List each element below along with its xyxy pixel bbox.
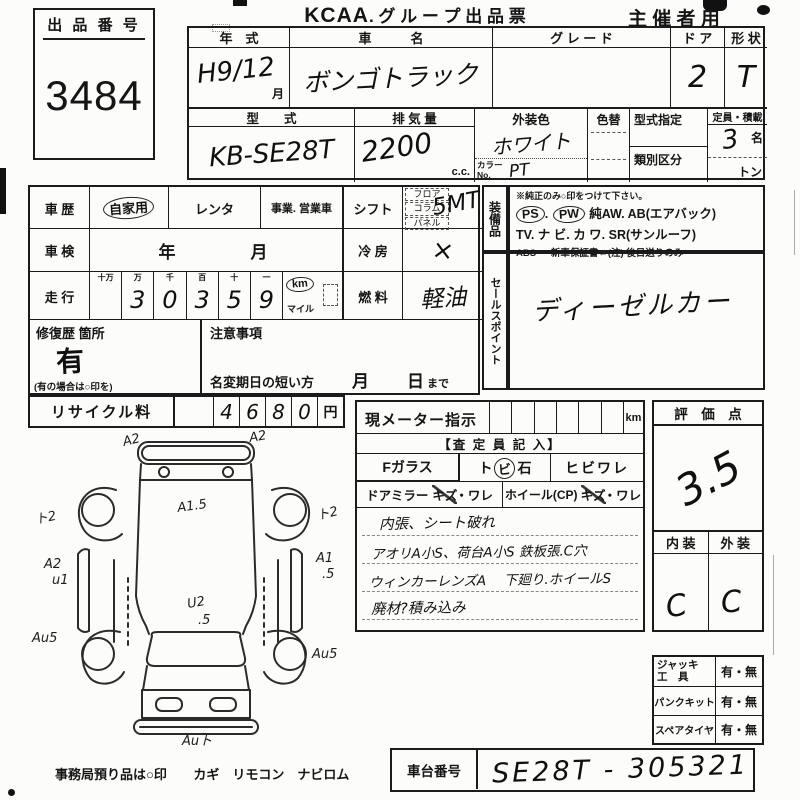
aircon-value: × (430, 234, 456, 267)
rear-fender-right (266, 488, 309, 540)
scan-artifact (757, 5, 770, 15)
jack-tools-label-2: 工 具 (657, 671, 715, 683)
fuel-cell: 軽油 (402, 272, 482, 320)
exterior-label: 外 装 (709, 532, 763, 553)
assessor-note-4: 廃材?積み込み (371, 596, 466, 619)
damage-annotation: A2 (43, 557, 61, 572)
digit-header: 万 (122, 272, 153, 283)
exterior-grade-cell: C (709, 554, 763, 630)
displacement-value: 2200 (359, 126, 434, 169)
lot-number-box: 出 品 番 号 3484 (33, 8, 155, 160)
shaken-label: 車 検 (30, 229, 90, 272)
model-cell: 型 式 KB-SE28T (189, 107, 354, 182)
exterior-color-cell: 外装色 ホワイト カラーNo. PT (474, 107, 587, 182)
ruled-line (362, 535, 638, 536)
assessor-header: 【査 定 員 記 入】 (357, 434, 643, 454)
year-label: 年 式 (189, 28, 289, 48)
shaken-value: 年 月 (90, 229, 342, 272)
spare-tire-label: スペアタイヤ (654, 716, 716, 743)
history-row: 車 歴 自家用 レンタ 事業. 営業車 シフト フロア コラム パネル 5MT (30, 187, 482, 229)
repair-value: 有 (55, 339, 85, 380)
door-value: 2 (688, 60, 707, 95)
scan-artifact (8, 789, 15, 796)
wheel-kizu: キズ (581, 485, 606, 504)
equipment-ps: PS (515, 205, 545, 224)
rear-fender-left (79, 488, 122, 540)
door-mirror-label: ドアミラー (366, 485, 428, 504)
model-designation-cell: 型式指定 類別区分 (629, 107, 707, 182)
side-panel-left (78, 549, 89, 632)
door-label: ド ア (671, 28, 724, 48)
mileage-digits: 十万 万3 千0 百3 十5 一9 (90, 272, 282, 320)
equipment-line1: 純AW. AB(エアバック) (589, 207, 716, 221)
damage-annotation: .5 (198, 613, 210, 628)
shape-cell: 形 状 T (724, 28, 767, 107)
meter-digit-box (556, 402, 578, 433)
crack-label: ヒビワレ (550, 454, 643, 482)
bed-right-edge (252, 480, 256, 596)
recycle-digit: 6 (239, 397, 265, 426)
office-note-items: カギ リモコン ナビロム (193, 767, 349, 782)
history-business: 事業. 営業車 (260, 187, 342, 229)
office-note: 事務局預り品は○印 カギ リモコン ナビロム (55, 764, 349, 784)
sales-point-box: ディーゼルカー (508, 252, 765, 390)
mileage-mile-box (323, 284, 338, 306)
door-mirror-kizu: キズ (432, 485, 457, 504)
history-rental: レンタ (168, 187, 260, 229)
jack-tools-value: 有・無 (716, 657, 762, 686)
meter-row: 現メーター指示 km (357, 402, 643, 434)
history-label: 車 歴 (30, 187, 90, 229)
displacement-unit: c.c. (452, 166, 470, 178)
exterior-grade: C (719, 584, 743, 621)
sheet-title-text: . グ ル ー プ 出 品 票 (369, 7, 526, 26)
mileage-unit-cell: km マイル (282, 272, 342, 320)
damage-annotation: ト2 (315, 504, 339, 524)
damage-annotation: A2 (247, 428, 268, 446)
equipment-vlabel: 装備品 (487, 201, 504, 237)
damage-annotation: Au5 (31, 631, 57, 646)
rear-gate-inner (142, 446, 250, 460)
mileage-digit: 3 (122, 283, 153, 317)
vehicle-diagram: A2 A2 A1.5 ト2 ト2 A2 u1 A1 .5 U2 .5 Au5 A… (28, 428, 352, 750)
rating-score: 3.5 (667, 441, 749, 516)
year-cell: 年 式 H9/12 月 (189, 28, 289, 107)
assessor-note-1: 内張、シート破れ (379, 511, 495, 534)
repair-caution-row: 修復歴 箇所 有 (有の場合は○印を) 注意事項 名変期日の短い方 月 日 まで (30, 320, 482, 397)
capacity-unit: 名 (751, 129, 763, 146)
model-label: 型 式 (189, 109, 354, 127)
interior-grade: C (663, 587, 690, 625)
cab-neck-left (136, 596, 149, 634)
cab-neck-right (243, 596, 256, 634)
damage-annotation: A1 (315, 551, 333, 566)
color-change-label: 色替 (588, 109, 629, 128)
digit-header: 一 (251, 272, 282, 283)
vehicle-table: 年 式 H9/12 月 車 名 ボンゴトラック グ レ ー ド ド ア 2 形 … (187, 26, 765, 180)
recycle-digit: 4 (213, 397, 239, 426)
interior-grade-cell: C (654, 554, 709, 630)
caution-label: 注意事項 (210, 323, 262, 342)
grade-cell: グ レ ー ド (492, 28, 670, 107)
side-panel-right (291, 549, 302, 632)
shift-label: シフト (342, 187, 402, 229)
scan-artifact (0, 168, 6, 214)
shape-value: T (737, 60, 755, 95)
ruled-line (362, 619, 638, 620)
recycle-unit: 円 (317, 397, 343, 426)
meter-digit-box (534, 402, 556, 433)
damage-annotation: U2 (186, 594, 206, 612)
puncture-kit-label: パンクキット (654, 687, 716, 715)
sheet-title: KCAA. グ ル ー プ 出 品 票 (250, 2, 580, 28)
meter-digit-box (601, 402, 623, 433)
windshield (147, 632, 245, 666)
fuel-label: 燃 料 (342, 272, 402, 320)
exterior-color-value: ホワイト (490, 125, 572, 161)
meter-digit-box (578, 402, 600, 433)
sales-point-value: ディーゼルカー (531, 281, 733, 328)
kcaa-logo: KCAA (304, 4, 369, 27)
chassis-box: 車台番号 SE28T - 305321 (390, 748, 755, 792)
history-private: 自家用 (90, 187, 168, 229)
bed-hook-left (159, 467, 169, 477)
digit-header: 十万 (90, 272, 121, 283)
equipment-note: ※純正のみ○印をつけて下さい。 (516, 189, 757, 202)
wheel-cell: ホイール(CP) キズ・ワレ (503, 482, 643, 507)
aircon-label: 冷 房 (342, 229, 402, 272)
mileage-digit: 9 (251, 283, 282, 317)
sales-point-vlabel: セールスポイント (487, 277, 503, 365)
mileage-digit: 3 (187, 283, 218, 317)
damage-annotation: .5 (322, 567, 334, 582)
stone-chip-post: 石 (518, 458, 532, 478)
mileage-unit-km: km (286, 276, 315, 293)
headlight-right (210, 698, 236, 711)
name-label: 車 名 (290, 28, 492, 48)
recycle-digit: 0 (291, 397, 317, 426)
displacement-cell: 排 気 量 2200 c.c. (354, 107, 474, 182)
caution-text: 名変期日の短い方 (210, 372, 314, 391)
load-unit: トン (738, 158, 767, 180)
meter-label: 現メーター指示 (365, 409, 477, 430)
headlight-left (156, 698, 182, 711)
displacement-label: 排 気 量 (355, 109, 474, 127)
shift-cell: フロア コラム パネル 5MT (402, 187, 482, 229)
capacity-label: 定員・積載 (708, 109, 767, 125)
model-value: KB-SE28T (208, 135, 336, 174)
model-designation-label: 型式指定 (630, 109, 707, 128)
aircon-cell: × (402, 229, 482, 272)
capacity-cell: 定員・積載 3 名 トン (707, 107, 767, 182)
name-value: ボンゴトラック (303, 54, 480, 99)
jack-tools-label-cell: ジャッキ 工 具 (654, 657, 716, 686)
stone-chip-pre: ト (478, 458, 492, 478)
color-no-label: カラーNo. (475, 161, 509, 180)
chassis-value: SE28T - 305321 (492, 750, 750, 790)
front-face (142, 690, 250, 718)
lot-number-label: 出 品 番 号 (43, 14, 145, 40)
digit-header: 千 (154, 272, 185, 283)
color-change-cell: 色替 (587, 107, 629, 182)
color-no-value: PT (508, 159, 531, 181)
sales-point-vlabel-box: セールスポイント (482, 252, 508, 390)
digit-header: 十 (219, 272, 250, 283)
damage-annotation: Auト (181, 734, 212, 749)
mileage-digit: 0 (154, 283, 185, 317)
lot-number-value: 3484 (35, 72, 153, 120)
door-mirror-cell: ドアミラー キズ・ワレ (357, 482, 503, 507)
stone-chip-mark: ビ (494, 457, 516, 479)
gate-connectors (140, 464, 252, 480)
grade-label: グ レ ー ド (493, 28, 670, 48)
meter-section: 現メーター指示 km 【査 定 員 記 入】 Fガラス ト ビ 石 ヒビワレ ド… (355, 400, 645, 632)
scan-artifact (794, 190, 795, 255)
scan-artifact (773, 555, 774, 655)
history-table: 車 歴 自家用 レンタ 事業. 営業車 シフト フロア コラム パネル 5MT … (28, 185, 480, 395)
mileage-unit-mile: マイル (287, 302, 314, 315)
shape-label: 形 状 (725, 28, 767, 48)
ruled-line (362, 591, 638, 592)
recycle-fee-box: リサイクル料 4 6 8 0 円 (28, 395, 345, 428)
shaken-row: 車 検 年 月 冷 房 × (30, 229, 482, 272)
bed-hook-right (223, 467, 233, 477)
meter-unit: km (623, 402, 643, 433)
class-division-label: 類別区分 (630, 147, 707, 168)
assessor-note-2: アオリA小S、荷台A小S 鉄板張.C穴 (371, 539, 587, 563)
fuel-value: 軽油 (418, 277, 466, 314)
chassis-label: 車台番号 (392, 750, 478, 789)
cab-sides (143, 666, 249, 690)
door-cell: ド ア 2 (670, 28, 724, 107)
wheel-ware: ・ワレ (604, 485, 642, 504)
repair-cell: 修復歴 箇所 有 (有の場合は○印を) (30, 320, 202, 397)
name-cell: 車 名 ボンゴトラック (289, 28, 492, 107)
scan-artifact (233, 0, 247, 6)
equipment-vlabel-box: 装備品 (482, 185, 508, 252)
tools-box: ジャッキ 工 具 有・無 パンクキット 有・無 スペアタイヤ 有・無 (652, 655, 764, 745)
stone-chip-cell: ト ビ 石 (460, 454, 550, 482)
glass-row: Fガラス ト ビ 石 ヒビワレ (357, 454, 643, 482)
rating-label: 評 価 点 (654, 402, 762, 426)
wheel-label: ホイール(CP) (505, 486, 578, 503)
office-note-label: 事務局預り品は○印 (55, 767, 167, 782)
exterior-color-label: 外装色 (475, 109, 587, 127)
equipment-line2: TV. ナ ビ. カ ワ. SR(サンルーフ) (516, 224, 757, 243)
damage-annotation: A1.5 (175, 497, 207, 516)
equipment-box: ※純正のみ○印をつけて下さい。 PS. PW 純AW. AB(エアバック) TV… (508, 185, 765, 252)
recycle-fee-label: リサイクル料 (30, 397, 175, 426)
assessor-note-3: ウィンカーレンズA 下廻り.ホイールS (369, 567, 611, 591)
puncture-kit-value: 有・無 (716, 687, 762, 715)
mirror-wheel-row: ドアミラー キズ・ワレ ホイール(CP) キズ・ワレ (357, 482, 643, 508)
caution-month: 月 (352, 367, 369, 392)
jack-tools-label-1: ジャッキ (657, 659, 715, 671)
rating-score-area: 3.5 (654, 426, 762, 530)
damage-annotation: Au5 (311, 647, 337, 662)
damage-annotation: u1 (52, 573, 69, 588)
front-glass-label: Fガラス (357, 454, 460, 482)
capacity-value: 3 (720, 124, 741, 156)
history-private-label: 自家用 (103, 195, 155, 221)
caution-day: 日 (407, 367, 424, 392)
meter-digit-box (511, 402, 533, 433)
rear-wheel-left (82, 494, 114, 526)
rear-wheel-right (274, 494, 306, 526)
assessor-notes: 内張、シート破れ アオリA小S、荷台A小S 鉄板張.C穴 ウィンカーレンズA 下… (357, 508, 643, 630)
auction-sheet: { "page": { "title_logo": "KCAA", "title… (0, 0, 800, 800)
spare-tire-value: 有・無 (716, 716, 762, 743)
meter-digit-box (489, 402, 511, 433)
caution-cell: 注意事項 名変期日の短い方 月 日 まで (202, 320, 482, 397)
recycle-digit: 8 (265, 397, 291, 426)
ruled-line (362, 563, 638, 564)
year-value: H9/12 (196, 52, 277, 90)
bed-left-edge (136, 480, 140, 596)
mileage-digit (90, 283, 121, 317)
year-unit: 月 (272, 85, 284, 102)
mileage-digit: 5 (219, 283, 250, 317)
caution-made: まで (427, 375, 449, 391)
rating-box: 評 価 点 3.5 内 装 外 装 C C (652, 400, 764, 632)
interior-label: 内 装 (654, 532, 709, 553)
repair-note: (有の場合は○印を) (34, 379, 113, 393)
door-mirror-ware: ・ワレ (455, 485, 493, 504)
damage-annotation: ト2 (34, 509, 58, 528)
digit-header: 百 (187, 272, 218, 283)
mileage-row: 走 行 十万 万3 千0 百3 十5 一9 km マイル 燃 料 軽油 (30, 272, 482, 320)
equipment-pw: PW (552, 205, 585, 224)
mileage-label: 走 行 (30, 272, 90, 320)
